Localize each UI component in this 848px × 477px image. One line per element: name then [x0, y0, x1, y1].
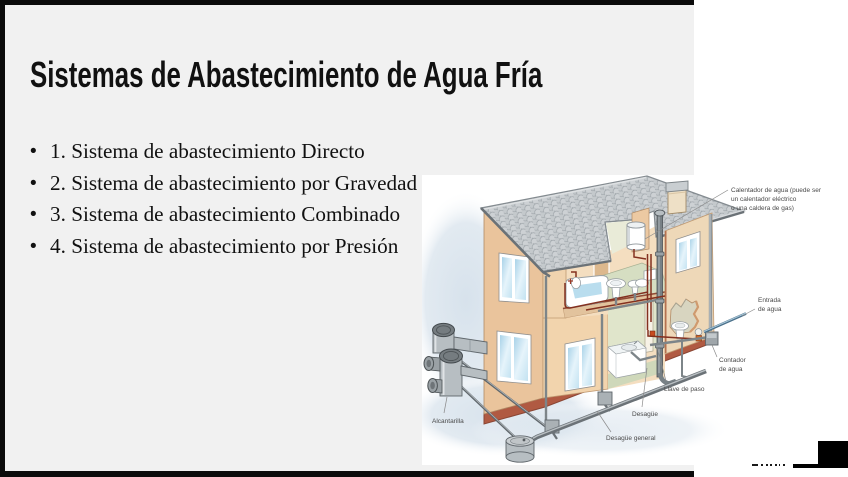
svg-text:Entrada: Entrada [758, 297, 781, 304]
svg-text:Desagüe general: Desagüe general [606, 435, 656, 442]
svg-text:de agua: de agua [758, 306, 782, 313]
svg-text:o una caldera de gas): o una caldera de gas) [731, 205, 794, 212]
svg-text:de agua: de agua [719, 366, 743, 373]
svg-text:Contador: Contador [719, 357, 747, 364]
svg-text:Alcantarilla: Alcantarilla [432, 418, 464, 425]
svg-text:Desagüe: Desagüe [632, 411, 658, 418]
svg-text:un calentador eléctrico: un calentador eléctrico [731, 196, 797, 203]
svg-text:Llave de paso: Llave de paso [664, 386, 705, 393]
svg-text:Calentador de agua (puede ser: Calentador de agua (puede ser [731, 187, 822, 194]
